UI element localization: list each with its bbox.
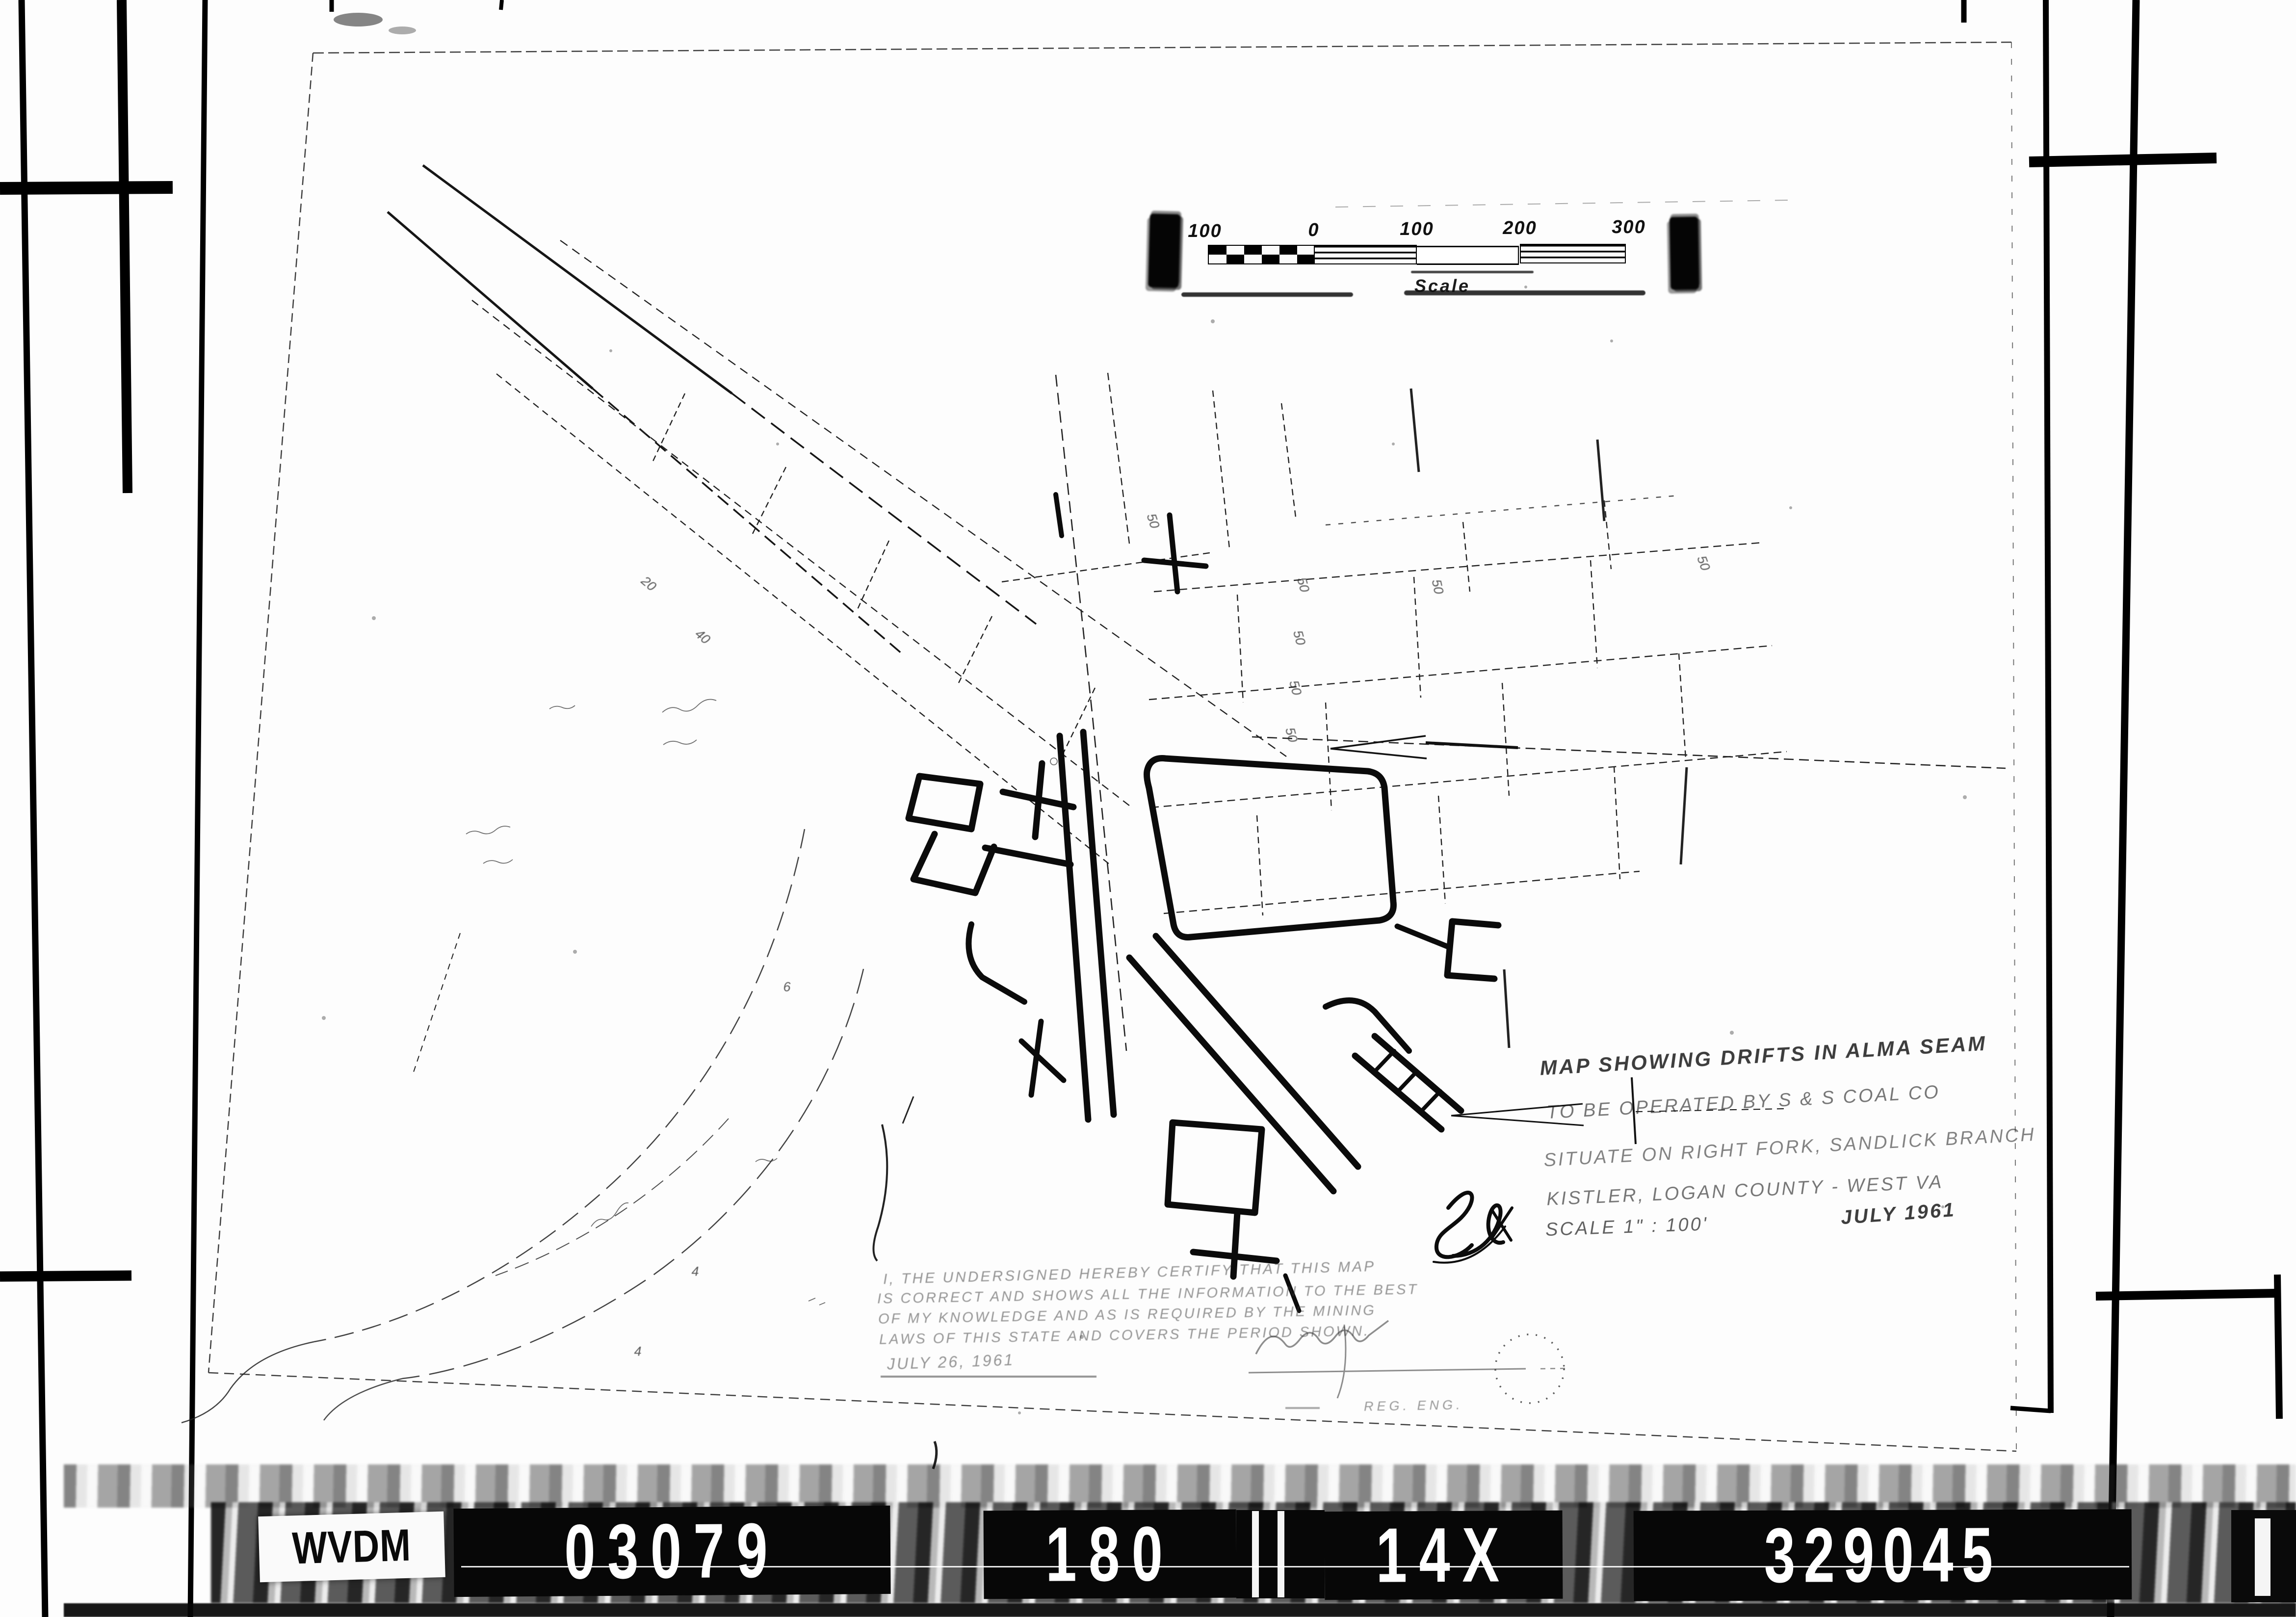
film-frame-lines (0, 0, 2279, 1617)
handwriting-squiggles (466, 700, 1057, 1305)
scale-bar-checker-segment (1208, 245, 1315, 264)
faint-guide-line (1335, 200, 1788, 207)
mine-map-drawing (0, 0, 2296, 1617)
id-book-panel: 03079 (453, 1506, 890, 1597)
ink-signature-flourish (1434, 1193, 1512, 1263)
id-agency-label: WVDM (292, 1519, 412, 1574)
mine-workings (909, 495, 1498, 1311)
railroad-lines (388, 165, 1036, 653)
creek-lines (182, 829, 937, 1469)
id-frame-panel: 180 (984, 1510, 1237, 1599)
scale-tick-label: 100 (1400, 219, 1434, 240)
film-smudge-band (64, 1464, 2296, 1508)
signature-underline (881, 1376, 1096, 1378)
parcel-boundary-lines (413, 240, 2006, 1073)
id-magnification-panel: 14X (1325, 1511, 1563, 1600)
scale-tick-label: 100 (1188, 221, 1222, 242)
scale-tick-label: 300 (1612, 217, 1645, 238)
scale-tick-label: 0 (1308, 220, 1319, 241)
film-slit (1278, 1511, 1284, 1597)
sheet-border (209, 42, 2016, 1451)
scale-bar-segment (1520, 244, 1626, 263)
id-book-number: 03079 (564, 1506, 780, 1596)
survey-arrow-upper (1331, 736, 1518, 758)
dash-mark (1285, 1407, 1320, 1409)
ink-smear (1181, 292, 1353, 297)
id-document-number: 329045 (1764, 1511, 2002, 1600)
scale-bar-underline (1411, 271, 1534, 273)
ink-blob (1670, 217, 1699, 290)
ink-smear (1404, 290, 1645, 295)
film-specks (322, 286, 1967, 1414)
id-frame-number: 180 (1045, 1510, 1174, 1599)
id-document-panel: 329045 (1634, 1509, 2132, 1601)
scale-tick-label: 200 (1503, 218, 1537, 239)
film-scratch-line (461, 1566, 2129, 1567)
scale-bar-segment (1314, 245, 1417, 264)
ink-blob (1148, 213, 1180, 288)
id-strip-bottom-edge (64, 1603, 2296, 1617)
film-slit (2255, 1518, 2270, 1596)
certifier-title: REG. ENG. (1364, 1397, 1463, 1414)
id-magnification: 14X (1376, 1511, 1512, 1600)
id-agency-card: WVDM (258, 1512, 445, 1583)
film-slit (1252, 1511, 1259, 1597)
scale-bar-segment (1417, 246, 1519, 265)
microfilm-scan-page: 100 0 100 200 300 Scale 2040505050505050… (0, 0, 2296, 1617)
